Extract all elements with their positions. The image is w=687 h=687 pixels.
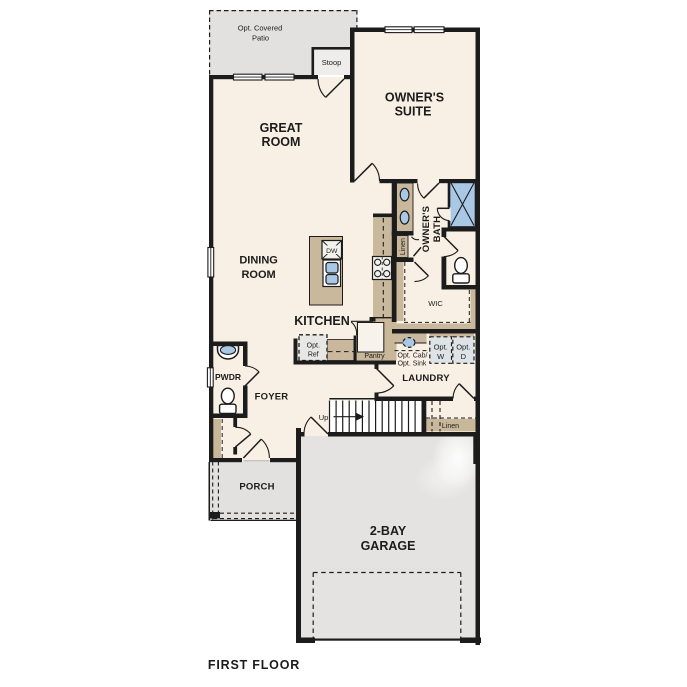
svg-text:WIC: WIC — [428, 299, 443, 308]
svg-text:BATH: BATH — [432, 216, 443, 242]
svg-text:FIRST FLOOR: FIRST FLOOR — [208, 658, 300, 672]
svg-text:W: W — [437, 352, 445, 361]
svg-text:Stoop: Stoop — [322, 58, 342, 67]
svg-text:Opt. Cab/: Opt. Cab/ — [398, 353, 428, 360]
svg-text:SUITE: SUITE — [395, 105, 432, 119]
svg-text:DW: DW — [326, 248, 338, 255]
svg-text:Opt. Covered: Opt. Covered — [238, 24, 283, 33]
svg-text:Opt.: Opt. — [434, 342, 448, 351]
svg-text:PWDR: PWDR — [215, 372, 241, 382]
svg-text:Opt. Sink: Opt. Sink — [398, 360, 427, 367]
svg-text:FOYER: FOYER — [255, 392, 289, 403]
svg-text:DINING: DINING — [239, 255, 278, 267]
svg-text:2-BAY: 2-BAY — [370, 524, 407, 538]
svg-text:Patio: Patio — [252, 34, 269, 43]
svg-text:GARAGE: GARAGE — [361, 539, 416, 553]
svg-text:KITCHEN: KITCHEN — [294, 314, 350, 328]
svg-text:D: D — [461, 352, 467, 361]
svg-text:Linen: Linen — [442, 423, 459, 430]
svg-text:GREAT: GREAT — [260, 121, 303, 135]
svg-text:Linen: Linen — [400, 238, 407, 255]
svg-text:Opt.: Opt. — [456, 342, 470, 351]
svg-text:OWNER'S: OWNER'S — [421, 206, 432, 252]
svg-text:Up: Up — [319, 413, 329, 422]
svg-text:ROOM: ROOM — [262, 135, 301, 149]
svg-text:ROOM: ROOM — [241, 269, 275, 281]
svg-text:Pantry: Pantry — [364, 353, 385, 360]
svg-text:Opt.: Opt. — [307, 342, 320, 349]
svg-text:Ref: Ref — [308, 351, 319, 358]
svg-text:PORCH: PORCH — [239, 482, 274, 493]
svg-text:LAUNDRY: LAUNDRY — [402, 373, 450, 384]
svg-text:OWNER'S: OWNER'S — [385, 91, 444, 105]
